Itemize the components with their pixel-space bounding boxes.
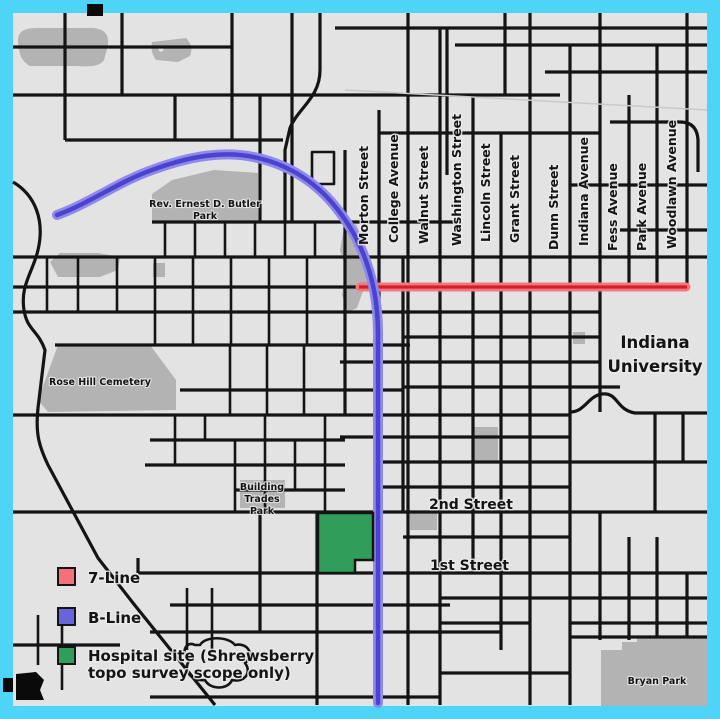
street-label-morton-street: Morton Street [356,146,371,245]
legend-swatch-7-line [58,568,75,585]
legend-label-hospital-site-line1: Hospital site (Shrewsberry [88,647,314,665]
street-label-park-avenue: Park Avenue [634,163,649,251]
street-label-indiana-avenue: Indiana Avenue [576,137,591,246]
butler-park-label-line2: Park [193,211,218,222]
building-trades-park-label-line1: Building [240,482,284,493]
street-label-fess-avenue: Fess Avenue [605,163,620,251]
legend-label-hospital-site-line2: topo survey scope only) [88,664,291,682]
street-label-1st-street: 1st Street [430,558,509,574]
street-label-woodlawn-avenue: Woodlawn Avenue [664,120,679,249]
street-label-washington-street: Washington Street [449,114,464,246]
rose-hill-cemetery-label: Rose Hill Cemetery [49,377,152,388]
street-label-2nd-street: 2nd Street [429,497,513,513]
bryan-park-label: Bryan Park [628,676,687,687]
street-label-grant-street: Grant Street [507,155,522,243]
building-trades-park-label-line3: Park [250,506,275,517]
indiana-university-label-line1: Indiana [620,333,689,352]
map-frame: Morton Street College Avenue Walnut Stre… [0,0,720,719]
legend-swatch-b-line [58,608,75,625]
gray-building-3 [410,513,437,530]
street-label-college-avenue: College Avenue [386,134,401,243]
legend-label-7-line: 7-Line [88,569,140,587]
black-blob-top [87,4,103,16]
gray-building-2 [472,427,498,463]
butler-park-label-line1: Rev. Ernest D. Butler [149,199,261,210]
street-label-dunn-street: Dunn Street [546,164,561,250]
street-label-walnut-street: Walnut Street [416,146,431,244]
street-label-lincoln-street: Lincoln Street [478,143,493,242]
city-map: Morton Street College Avenue Walnut Stre… [0,0,720,719]
black-blob-border [3,678,13,692]
legend-swatch-hospital-site [58,647,75,664]
indiana-university-label-line2: University [607,357,702,376]
legend-label-b-line: B-Line [88,609,141,627]
black-blob-bottom-left [16,672,44,700]
building-trades-park-label-line2: Trades [244,494,280,505]
